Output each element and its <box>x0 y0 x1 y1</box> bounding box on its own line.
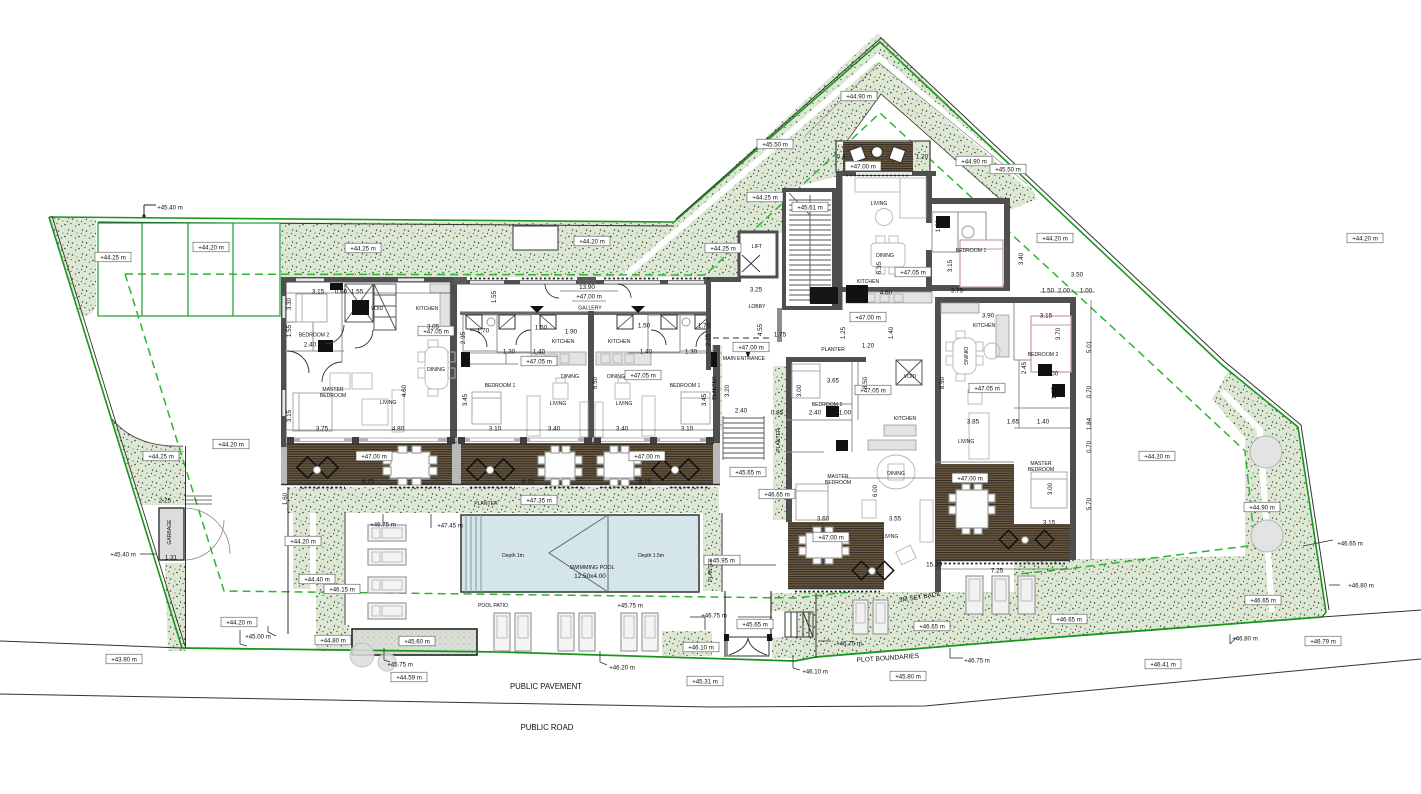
svg-text:1.80: 1.80 <box>935 219 942 232</box>
svg-text:+46.41 m: +46.41 m <box>1150 661 1176 668</box>
svg-text:2.35: 2.35 <box>460 331 467 344</box>
svg-text:+47.05 m: +47.05 m <box>974 385 1000 392</box>
svg-text:+47.00 m: +47.00 m <box>957 475 983 482</box>
svg-text:BEDROOM 1: BEDROOM 1 <box>485 383 516 389</box>
svg-text:0.4: 0.4 <box>837 153 846 160</box>
svg-text:3.15: 3.15 <box>1043 519 1056 526</box>
svg-text:1.55: 1.55 <box>491 290 498 303</box>
svg-text:LIVING: LIVING <box>871 201 888 207</box>
svg-text:+46.10 m: +46.10 m <box>802 668 828 675</box>
svg-text:DINING: DINING <box>876 253 894 259</box>
svg-text:+44.20 m: +44.20 m <box>1042 235 1068 242</box>
svg-text:+44.25 m: +44.25 m <box>752 194 778 201</box>
svg-text:3.05: 3.05 <box>427 323 440 330</box>
svg-text:1.65: 1.65 <box>1007 418 1020 425</box>
svg-text:+44.20 m: +44.20 m <box>226 619 252 626</box>
svg-text:LIVING: LIVING <box>380 400 397 406</box>
svg-text:DINING: DINING <box>962 347 968 365</box>
svg-text:+45.31 m: +45.31 m <box>692 678 718 685</box>
svg-text:PLANTER: PLANTER <box>776 428 782 452</box>
svg-text:+44.59 m: +44.59 m <box>396 674 422 681</box>
svg-text:BEDROOM 1: BEDROOM 1 <box>956 248 987 254</box>
svg-text:KITCHEN: KITCHEN <box>552 339 575 345</box>
svg-text:1.30: 1.30 <box>685 348 698 355</box>
svg-text:8.75: 8.75 <box>362 478 375 485</box>
svg-text:+46.75 m: +46.75 m <box>701 612 727 619</box>
svg-text:3.75: 3.75 <box>951 287 964 294</box>
svg-text:3.30: 3.30 <box>286 297 293 310</box>
svg-text:+44.20 m: +44.20 m <box>579 238 605 245</box>
svg-text:3.90: 3.90 <box>982 312 995 319</box>
svg-text:+47.35 m: +47.35 m <box>526 497 552 504</box>
svg-text:KITCHEN: KITCHEN <box>857 279 880 285</box>
svg-text:Depth 1.5m: Depth 1.5m <box>638 553 664 559</box>
svg-text:+46.20 m: +46.20 m <box>609 664 635 671</box>
svg-text:+44.25 m: +44.25 m <box>350 245 376 252</box>
svg-text:3.55: 3.55 <box>889 515 902 522</box>
svg-text:3.20: 3.20 <box>724 384 731 397</box>
svg-text:+45.00 m: +45.00 m <box>245 633 271 640</box>
svg-text:4.80: 4.80 <box>392 425 405 432</box>
svg-text:LOBBY: LOBBY <box>749 304 767 310</box>
svg-text:3.15: 3.15 <box>286 409 293 422</box>
svg-text:+47.00 m: +47.00 m <box>634 453 660 460</box>
svg-text:3.40: 3.40 <box>548 425 561 432</box>
svg-text:KITCHEN: KITCHEN <box>894 416 917 422</box>
svg-text:+47.05 m: +47.05 m <box>630 372 656 379</box>
svg-text:1.55: 1.55 <box>286 324 293 337</box>
svg-text:8.50: 8.50 <box>862 376 869 389</box>
svg-text:1.75: 1.75 <box>774 331 787 338</box>
svg-text:1.20: 1.20 <box>916 153 929 160</box>
svg-text:6.00: 6.00 <box>872 484 879 497</box>
svg-text:12.50x4.00: 12.50x4.00 <box>574 573 606 580</box>
svg-text:2.00: 2.00 <box>1058 287 1071 294</box>
svg-text:5.01: 5.01 <box>1086 340 1093 353</box>
svg-text:+47.00 m: +47.00 m <box>818 534 844 541</box>
svg-text:3.15: 3.15 <box>312 288 325 295</box>
svg-text:1.55: 1.55 <box>351 288 364 295</box>
svg-text:3.10: 3.10 <box>489 425 502 432</box>
svg-text:+47.05 m: +47.05 m <box>900 269 926 276</box>
svg-text:2.35: 2.35 <box>705 333 712 346</box>
svg-text:PLANTER: PLANTER <box>712 376 718 400</box>
svg-text:+44.20 m: +44.20 m <box>198 244 224 251</box>
svg-text:Depth 1m: Depth 1m <box>502 553 524 559</box>
svg-text:1.40: 1.40 <box>888 326 895 339</box>
svg-text:+45.50 m: +45.50 m <box>995 166 1021 173</box>
svg-text:2.40: 2.40 <box>809 409 822 416</box>
svg-text:0.60: 0.60 <box>335 288 348 295</box>
svg-text:3.45: 3.45 <box>701 393 708 406</box>
svg-text:4.55: 4.55 <box>757 323 764 336</box>
svg-text:1.40: 1.40 <box>1037 418 1050 425</box>
svg-text:LIVING: LIVING <box>958 439 975 445</box>
svg-text:3.60: 3.60 <box>817 515 830 522</box>
svg-text:2.00: 2.00 <box>1046 370 1059 377</box>
svg-text:+45.50 m: +45.50 m <box>762 141 788 148</box>
svg-text:3.40: 3.40 <box>616 425 629 432</box>
svg-text:1.70: 1.70 <box>698 322 711 329</box>
svg-text:+47.00 m: +47.00 m <box>361 453 387 460</box>
svg-text:+46.65 m: +46.65 m <box>919 623 945 630</box>
svg-text:+44.90 m: +44.90 m <box>846 93 872 100</box>
svg-text:3.75: 3.75 <box>316 425 329 432</box>
svg-text:+45.40 m: +45.40 m <box>110 551 136 558</box>
svg-text:1.00: 1.00 <box>1080 287 1093 294</box>
svg-text:+45.40 m: +45.40 m <box>157 204 183 211</box>
svg-text:3.85: 3.85 <box>967 418 980 425</box>
svg-text:1.60: 1.60 <box>282 492 289 505</box>
svg-text:2.25: 2.25 <box>159 497 172 504</box>
svg-text:BEDROOM 2: BEDROOM 2 <box>299 333 330 339</box>
svg-text:1.30: 1.30 <box>503 348 516 355</box>
svg-text:+44.20 m: +44.20 m <box>290 538 316 545</box>
svg-text:BEDROOM: BEDROOM <box>1028 467 1054 473</box>
svg-text:+45.65 m: +45.65 m <box>742 621 768 628</box>
svg-text:PUBLIC PAVEMENT: PUBLIC PAVEMENT <box>510 682 582 691</box>
svg-text:3.50: 3.50 <box>1071 271 1084 278</box>
svg-text:1.00: 1.00 <box>839 409 852 416</box>
svg-text:+47.00 m: +47.00 m <box>855 314 881 321</box>
svg-text:KITCHEN: KITCHEN <box>973 323 996 329</box>
svg-text:6.50: 6.50 <box>592 376 599 389</box>
svg-text:+44.25 m: +44.25 m <box>710 245 736 252</box>
svg-text:1.65: 1.65 <box>1051 386 1058 399</box>
svg-text:VOID: VOID <box>904 374 917 380</box>
svg-text:+46.15 m: +46.15 m <box>329 586 355 593</box>
svg-text:+47.45 m: +47.45 m <box>437 522 463 529</box>
svg-text:+46.65 m: +46.65 m <box>1337 540 1363 547</box>
svg-text:1.70: 1.70 <box>477 327 490 334</box>
svg-text:6.35: 6.35 <box>876 261 883 274</box>
svg-text:1.31: 1.31 <box>165 554 178 561</box>
svg-text:5.70: 5.70 <box>1086 497 1093 510</box>
svg-text:GALLERY: GALLERY <box>578 306 602 312</box>
svg-text:PLANTER: PLANTER <box>821 347 845 353</box>
svg-text:+46.75 m: +46.75 m <box>370 521 396 528</box>
svg-text:+44.25 m: +44.25 m <box>148 453 174 460</box>
svg-text:+46.75 m: +46.75 m <box>836 640 862 647</box>
svg-text:8.70: 8.70 <box>522 478 535 485</box>
svg-text:0.85: 0.85 <box>771 409 784 416</box>
svg-text:+44.90 m: +44.90 m <box>1249 504 1275 511</box>
svg-text:+47.00 m: +47.00 m <box>738 344 764 351</box>
svg-text:+44.90 m: +44.90 m <box>961 158 987 165</box>
svg-text:3.15: 3.15 <box>947 259 954 272</box>
svg-text:+46.65 m: +46.65 m <box>1250 597 1276 604</box>
svg-text:MAIN ENTRANCE: MAIN ENTRANCE <box>723 356 766 362</box>
svg-text:+46.65 m: +46.65 m <box>1056 616 1082 623</box>
svg-text:+46.80 m: +46.80 m <box>1348 582 1374 589</box>
svg-text:BEDROOM: BEDROOM <box>825 480 851 486</box>
svg-text:0.70: 0.70 <box>1086 385 1093 398</box>
svg-text:+45.65 m: +45.65 m <box>735 469 761 476</box>
svg-text:1.20: 1.20 <box>862 342 875 349</box>
svg-text:+47.00 m: +47.00 m <box>576 294 602 301</box>
svg-text:3.00: 3.00 <box>1047 482 1054 495</box>
svg-text:BEDROOM: BEDROOM <box>320 393 346 399</box>
svg-text:SWIMMING POOL: SWIMMING POOL <box>569 565 614 571</box>
svg-text:VOID: VOID <box>371 306 384 312</box>
svg-text:DINING: DINING <box>561 374 579 380</box>
svg-text:+44.40 m: +44.40 m <box>304 576 330 583</box>
svg-text:4.60: 4.60 <box>401 384 408 397</box>
svg-text:PLANTER: PLANTER <box>474 501 498 507</box>
svg-text:DINING: DINING <box>607 374 625 380</box>
svg-text:LIFT: LIFT <box>752 244 762 250</box>
svg-text:+46.80 m: +46.80 m <box>1232 635 1258 642</box>
svg-text:1.50: 1.50 <box>638 322 651 329</box>
svg-text:KITCHEN: KITCHEN <box>416 306 439 312</box>
svg-text:+47.05 m: +47.05 m <box>526 358 552 365</box>
svg-text:1.40: 1.40 <box>640 348 653 355</box>
svg-text:DINING: DINING <box>887 471 905 477</box>
svg-text:2.40: 2.40 <box>735 407 748 414</box>
svg-text:3.40: 3.40 <box>1018 252 1025 265</box>
svg-text:POOL PATIO: POOL PATIO <box>478 603 508 609</box>
svg-text:LIVING: LIVING <box>550 401 567 407</box>
svg-text:+46.10 m: +46.10 m <box>688 644 714 651</box>
svg-text:+47.00 m: +47.00 m <box>850 163 876 170</box>
svg-text:1.84: 1.84 <box>1086 417 1093 430</box>
svg-text:3.10: 3.10 <box>681 425 694 432</box>
svg-text:13.90: 13.90 <box>579 284 595 291</box>
svg-text:3.25: 3.25 <box>750 286 763 293</box>
svg-text:15.35: 15.35 <box>926 561 942 568</box>
svg-text:3.70: 3.70 <box>1055 327 1062 340</box>
svg-text:3.65: 3.65 <box>827 377 840 384</box>
svg-text:1.50: 1.50 <box>1042 287 1055 294</box>
svg-text:+45.80 m: +45.80 m <box>895 673 921 680</box>
svg-text:BEDROOM 2: BEDROOM 2 <box>812 402 843 408</box>
svg-text:3.45: 3.45 <box>462 393 469 406</box>
svg-text:PUBLIC ROAD: PUBLIC ROAD <box>521 723 574 732</box>
svg-text:3.00: 3.00 <box>796 384 803 397</box>
svg-text:BEDROOM 1: BEDROOM 1 <box>670 383 701 389</box>
svg-text:BEDROOM 2: BEDROOM 2 <box>1028 352 1059 358</box>
svg-text:2.40: 2.40 <box>304 341 317 348</box>
svg-text:+44.20 m: +44.20 m <box>218 441 244 448</box>
svg-text:GARBAGE: GARBAGE <box>167 519 173 545</box>
svg-text:7.25: 7.25 <box>991 567 1004 574</box>
svg-text:4.60: 4.60 <box>880 289 893 296</box>
svg-text:+44.25 m: +44.25 m <box>100 254 126 261</box>
svg-text:1.40: 1.40 <box>533 348 546 355</box>
svg-text:+46.79 m: +46.79 m <box>1310 638 1336 645</box>
svg-text:1.90: 1.90 <box>565 328 578 335</box>
svg-text:+44.80 m: +44.80 m <box>320 637 346 644</box>
svg-text:+45.75 m: +45.75 m <box>387 661 413 668</box>
svg-text:+43.90 m: +43.90 m <box>111 656 137 663</box>
svg-text:LIVING: LIVING <box>882 534 899 540</box>
svg-text:8.70: 8.70 <box>639 478 652 485</box>
svg-text:+45.61 m: +45.61 m <box>797 204 823 211</box>
svg-text:1.25: 1.25 <box>840 326 847 339</box>
svg-text:1.50: 1.50 <box>535 324 548 331</box>
svg-text:+46.65 m: +46.65 m <box>764 491 790 498</box>
svg-text:3.15: 3.15 <box>1040 312 1053 319</box>
svg-text:+44.20 m: +44.20 m <box>1352 235 1378 242</box>
svg-text:KITCHEN: KITCHEN <box>608 339 631 345</box>
svg-text:+46.75 m: +46.75 m <box>964 657 990 664</box>
svg-text:+44.20 m: +44.20 m <box>1144 453 1170 460</box>
svg-text:+45.60 m: +45.60 m <box>404 638 430 645</box>
svg-text:DINING: DINING <box>427 367 445 373</box>
svg-text:PLANTER: PLANTER <box>708 558 714 582</box>
svg-text:8.50: 8.50 <box>939 376 946 389</box>
svg-text:0.70: 0.70 <box>1086 440 1093 453</box>
svg-text:+45.75 m: +45.75 m <box>617 602 643 609</box>
svg-text:LIVING: LIVING <box>616 401 633 407</box>
svg-text:2.45: 2.45 <box>1021 361 1028 374</box>
